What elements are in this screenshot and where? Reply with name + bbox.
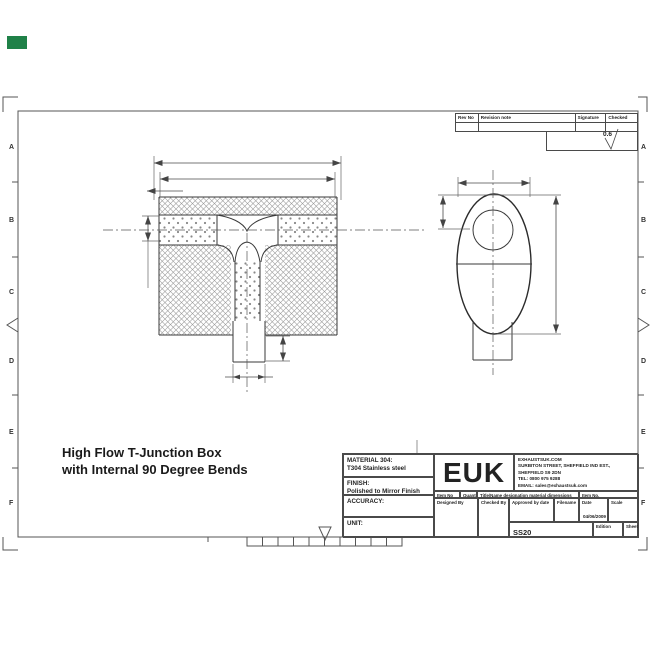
zone-label: D bbox=[641, 358, 646, 365]
quantity-header: Quantity bbox=[460, 491, 477, 498]
date-label: Date bbox=[582, 500, 592, 505]
accuracy-cell: ACCURACY: bbox=[343, 495, 434, 517]
unit-cell: UNIT: bbox=[343, 517, 434, 538]
drawing-linework: A B C D E F A B C D E F 0.6 bbox=[0, 0, 650, 650]
zone-label: C bbox=[641, 289, 646, 296]
zone-label: E bbox=[9, 429, 14, 436]
revision-table: Rev No Revision note Signature Checked bbox=[455, 113, 638, 132]
date-value: 04/06/2009 bbox=[583, 514, 606, 519]
title-block: MATERIAL 304: T304 Stainless steel FINIS… bbox=[342, 453, 638, 537]
zone-label: F bbox=[9, 500, 14, 507]
trim-mark-bottom-left bbox=[3, 537, 18, 550]
centring-mark-left bbox=[7, 318, 18, 332]
item-no-header: Item No bbox=[434, 491, 460, 498]
side-view-dimensions bbox=[438, 177, 561, 334]
filename-cell: Filename bbox=[554, 498, 579, 522]
rev-no-header: Rev No bbox=[456, 114, 479, 122]
revision-empty-row bbox=[456, 122, 637, 131]
sheet-cell: Sheet bbox=[623, 522, 639, 538]
finish-cell: FINISH: Polished to Mirror Finish bbox=[343, 477, 434, 495]
date-cell: Date 04/06/2009 bbox=[579, 498, 608, 522]
checked-header: Checked bbox=[606, 114, 637, 122]
side-view-oval-body bbox=[438, 170, 561, 375]
zone-label: D bbox=[9, 358, 14, 365]
drawing-sheet: A B C D E F A B C D E F 0.6 bbox=[0, 0, 650, 650]
unit-label: UNIT: bbox=[347, 520, 433, 528]
designed-by-cell: Designed By bbox=[434, 498, 478, 538]
pipe-bore-branch bbox=[235, 262, 260, 320]
signature-header: Signature bbox=[576, 114, 607, 122]
zone-label: B bbox=[641, 217, 646, 224]
checked-by-cell: Checked By bbox=[478, 498, 509, 538]
drawing-title-line2: with Internal 90 Degree Bends bbox=[62, 461, 248, 478]
edition-cell: Edition bbox=[593, 522, 623, 538]
zone-label: A bbox=[9, 144, 14, 151]
trim-mark-top-left bbox=[3, 97, 18, 112]
item-no2-header: Item No. bbox=[579, 491, 639, 498]
revision-note-header: Revision note bbox=[479, 114, 576, 122]
drawing-title: High Flow T-Junction Box with Internal 9… bbox=[62, 444, 248, 478]
revision-header-row: Rev No Revision note Signature Checked bbox=[456, 114, 637, 122]
material-value: T304 Stainless steel bbox=[347, 465, 433, 473]
company-logo: EUK bbox=[434, 454, 514, 491]
company-address: EXHAUSTSUK.COM SURBITON STREET, SHEFFIEL… bbox=[514, 454, 639, 491]
zone-label: C bbox=[9, 289, 14, 296]
accuracy-label: ACCURACY: bbox=[347, 498, 433, 506]
finish-value: Polished to Mirror Finish bbox=[347, 488, 433, 496]
trim-mark-top-right bbox=[638, 97, 647, 112]
material-cell: MATERIAL 304: T304 Stainless steel bbox=[343, 454, 434, 477]
centring-mark-right bbox=[638, 318, 649, 332]
zone-label: E bbox=[641, 429, 646, 436]
metric-graduation bbox=[247, 537, 402, 546]
zone-label: F bbox=[641, 500, 646, 507]
scale-cell: Scale bbox=[608, 498, 639, 522]
part-number-cell: SS20 bbox=[509, 522, 593, 538]
company-email: EMAIL: sales@exhaustsuk.com bbox=[518, 483, 638, 489]
zone-label: B bbox=[9, 217, 14, 224]
top-wall-hatch bbox=[159, 197, 337, 215]
finish-label: FINISH: bbox=[347, 480, 433, 488]
material-label: MATERIAL 304: bbox=[347, 457, 433, 465]
surface-finish-box bbox=[546, 131, 638, 151]
zone-label: A bbox=[641, 144, 646, 151]
bend-cusp bbox=[217, 215, 278, 231]
drawing-title-line1: High Flow T-Junction Box bbox=[62, 444, 248, 461]
front-view-t-junction bbox=[103, 156, 427, 392]
zone-ticks-right bbox=[638, 182, 644, 468]
trim-mark-bottom-right bbox=[638, 537, 647, 550]
zone-ticks-left bbox=[12, 182, 18, 468]
designation-header: Title/Name designation material dimensio… bbox=[477, 491, 579, 498]
approved-by-cell: Approved by date bbox=[509, 498, 554, 522]
